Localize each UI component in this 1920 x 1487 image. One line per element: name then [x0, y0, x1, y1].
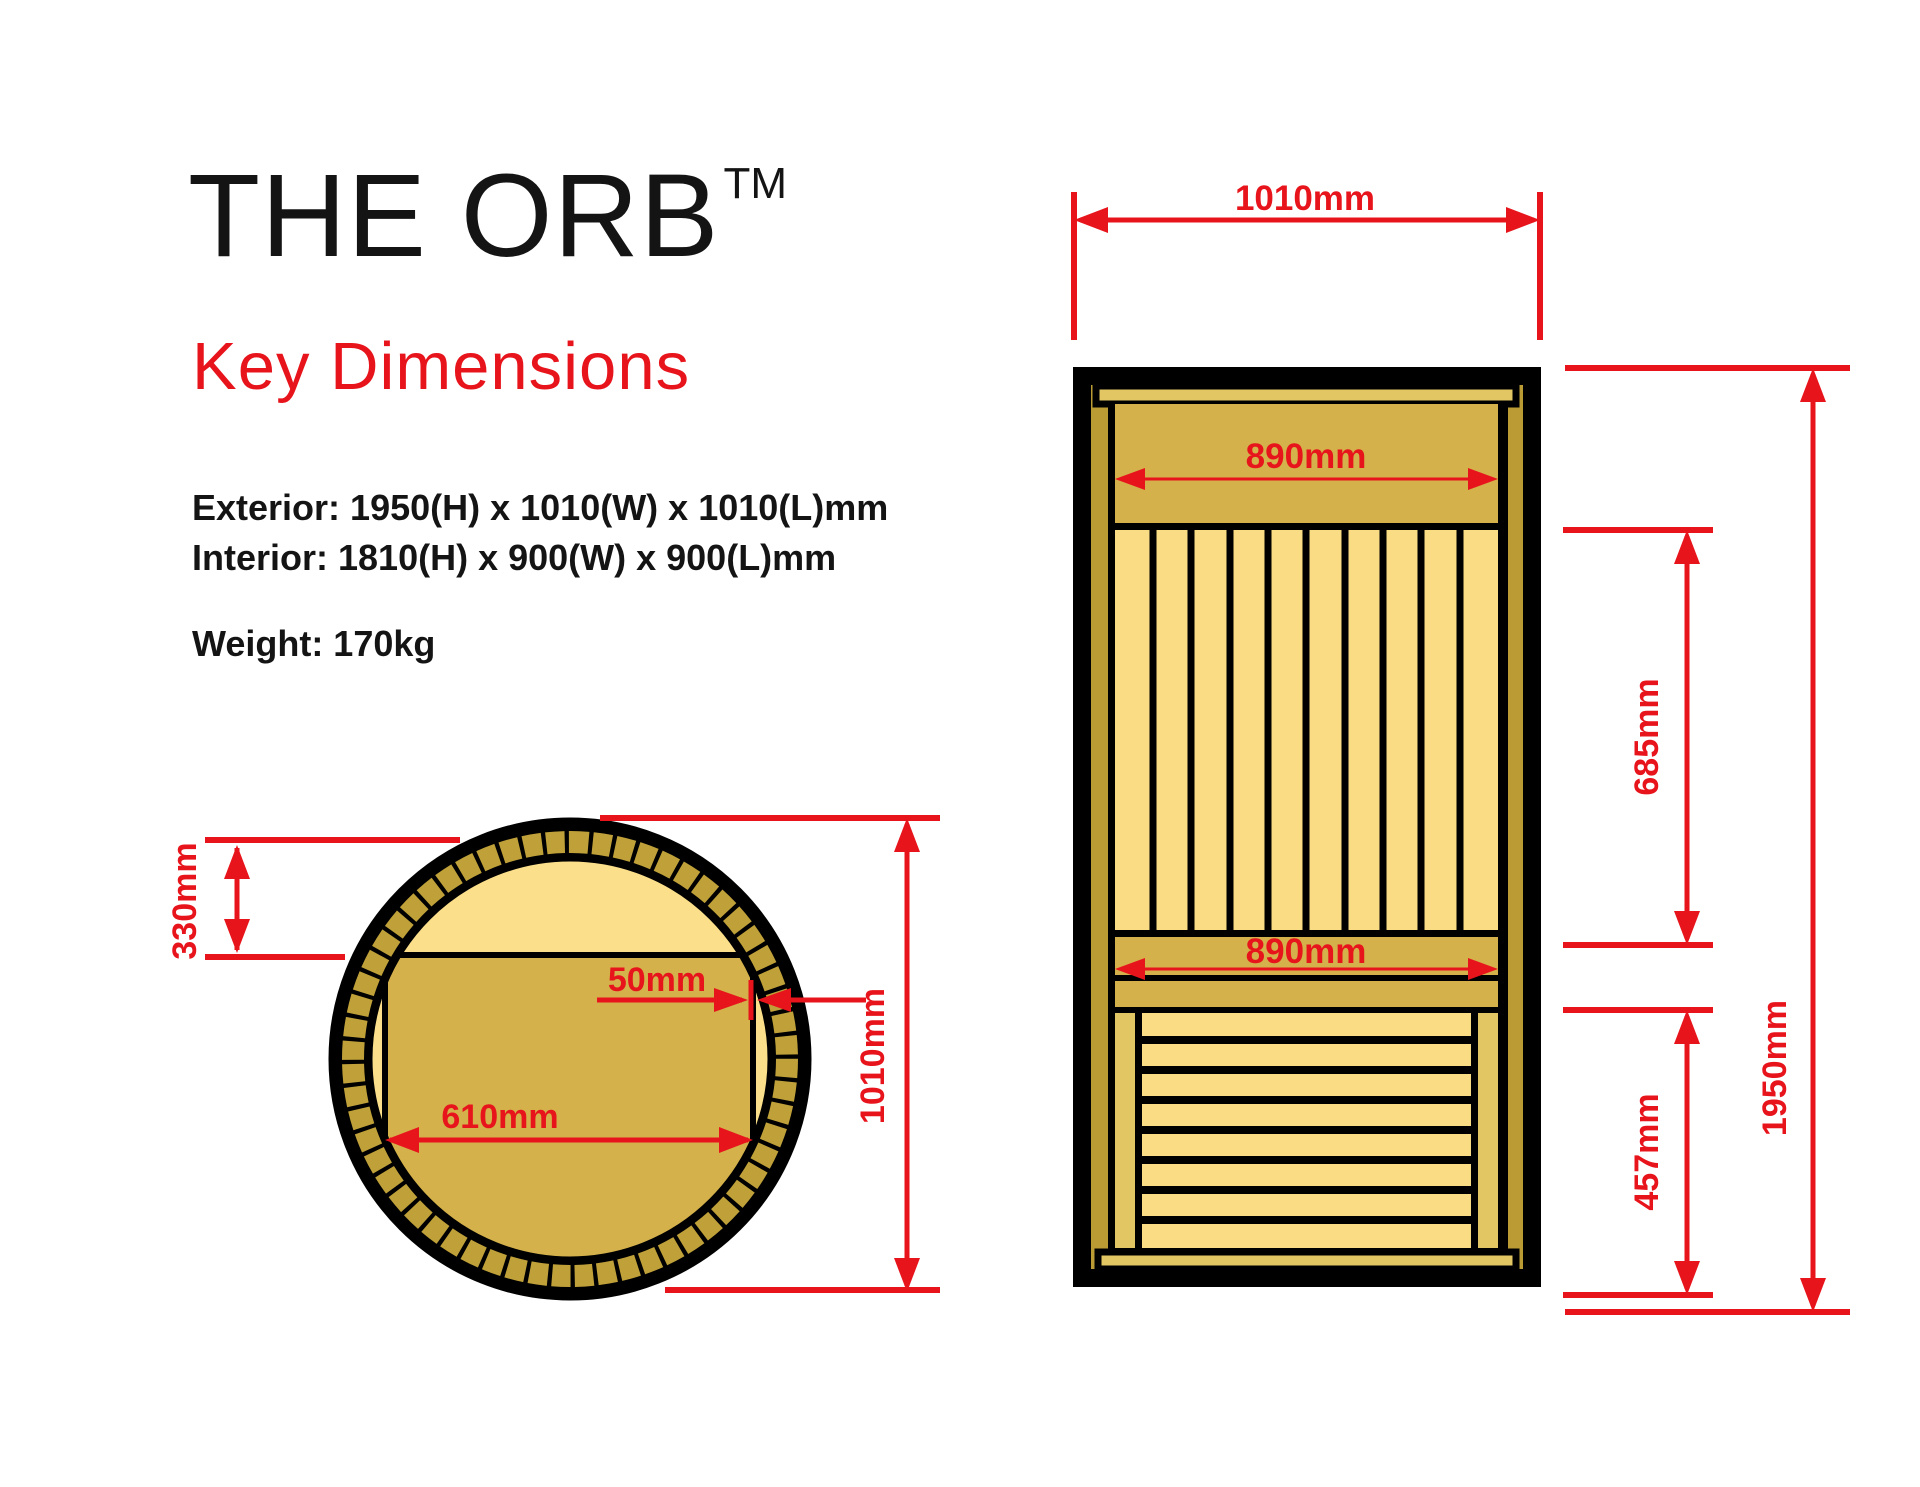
dim-330-label: 330mm [166, 842, 204, 959]
dim-457-label: 457mm [1628, 1093, 1666, 1210]
dim-890t-label: 890mm [1246, 437, 1367, 476]
technical-drawings: 330mm 50mm 610mm 1010mm [0, 0, 1920, 1487]
dim-457-arrow-down [1674, 1261, 1700, 1295]
dim-50-label: 50mm [608, 961, 706, 999]
horizontal-slat-lines [1142, 1040, 1471, 1220]
front-view-drawing [1082, 376, 1532, 1278]
dim-1950: 1950mm [1565, 368, 1850, 1312]
dim-685-label: 685mm [1628, 678, 1666, 795]
dim-890b-label: 890mm [1246, 932, 1367, 971]
top-cap-bar [1096, 386, 1516, 404]
bottom-left-stile [1115, 1013, 1135, 1248]
dim-610-label: 610mm [441, 1098, 558, 1136]
dim-1010c-label: 1010mm [854, 988, 892, 1124]
dim-330-arrow-up [224, 845, 250, 879]
dim-1010c-arrow-up [894, 818, 920, 852]
dim-1950-arrow-up [1800, 368, 1826, 402]
orb-spec-sheet: THE ORBTM Key Dimensions Exterior: 1950(… [0, 0, 1920, 1487]
dim-685: 685mm [1563, 530, 1713, 945]
dim-1010t-label: 1010mm [1235, 179, 1375, 218]
dim-457: 457mm [1563, 1010, 1713, 1295]
bench-lower-band [1115, 981, 1498, 1007]
dim-1010-top: 1010mm [1074, 179, 1540, 340]
dim-685-arrow-up [1674, 530, 1700, 564]
dim-1010t-arrow-right [1506, 207, 1540, 233]
bottom-right-stile [1478, 1013, 1498, 1248]
top-view-drawing [334, 823, 806, 1295]
dim-330-arrow-down [224, 919, 250, 953]
dim-457-arrow-up [1674, 1010, 1700, 1044]
dim-685-arrow-down [1674, 911, 1700, 945]
dim-1950-label: 1950mm [1756, 1000, 1794, 1136]
base-bar [1098, 1252, 1516, 1269]
dim-1950-arrow-down [1800, 1278, 1826, 1312]
dim-1010c-arrow-down [894, 1258, 920, 1292]
dim-1010t-arrow-left [1074, 207, 1108, 233]
